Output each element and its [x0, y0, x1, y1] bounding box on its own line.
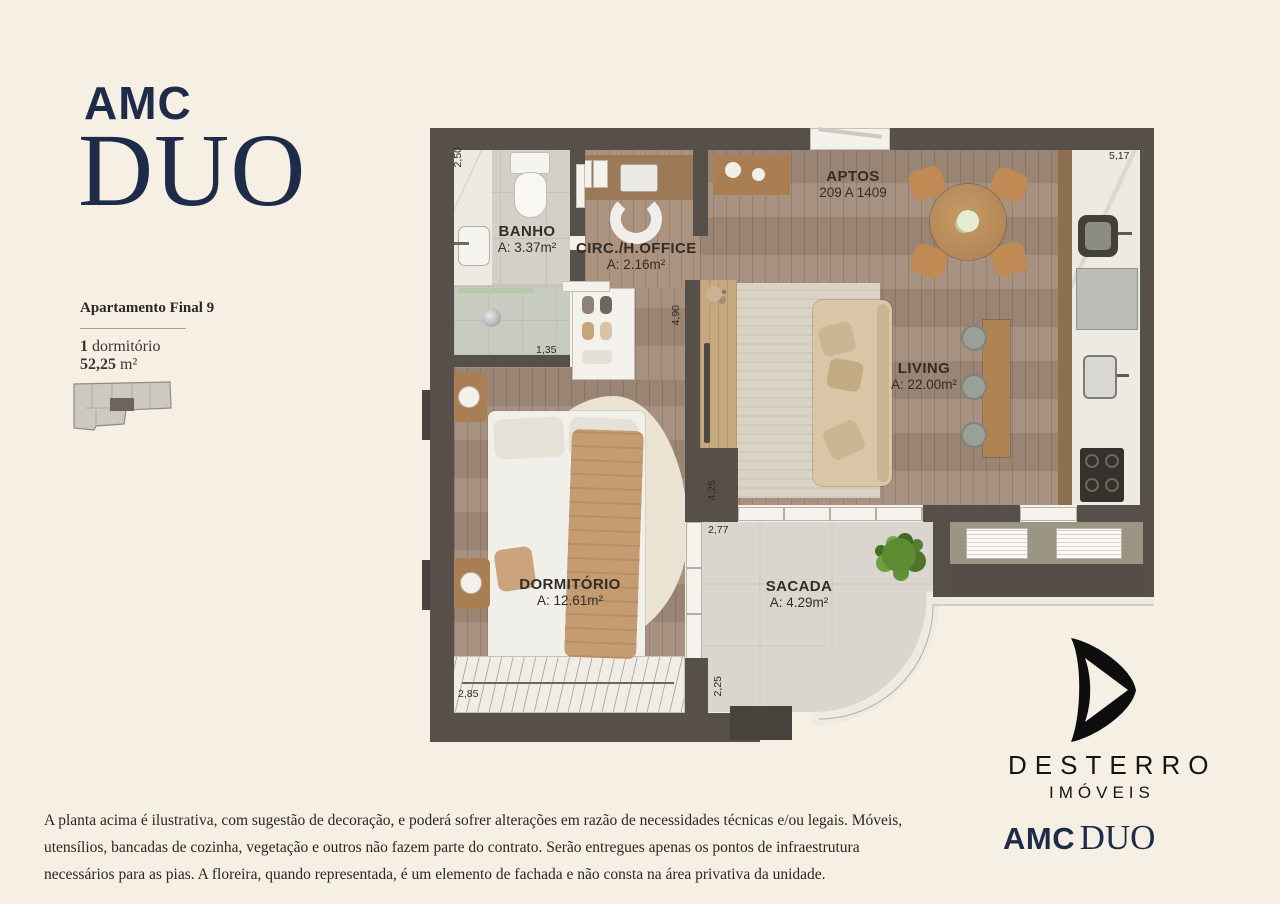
pilaster-left-lower — [422, 560, 430, 610]
aptos-title: APTOS — [793, 168, 913, 185]
dim-hall: 4,90 — [670, 305, 682, 325]
flyer-page: { "brand": { "amc": "AMC", "duo": "DUO" … — [0, 0, 1280, 904]
divider — [80, 328, 186, 329]
burner-2 — [1105, 454, 1119, 468]
bedroom-hall-floor — [635, 288, 685, 380]
curtain-rail — [462, 682, 674, 684]
footer-brand: AMC DUO — [1003, 818, 1155, 858]
wall-bath-bedroom — [448, 355, 570, 367]
label-circ: CIRC./H.OFFICE A: 2.16m² — [576, 240, 696, 272]
unit-area: 52,25 m² — [80, 356, 137, 374]
living-balcony-sliding-door — [738, 507, 923, 521]
balcony-plant — [882, 538, 916, 572]
burner-3 — [1085, 478, 1099, 492]
sofa-cushion-2 — [826, 357, 865, 392]
service-ledge-recess — [950, 564, 1143, 597]
wall-bottom — [430, 713, 760, 742]
shoes-1 — [582, 296, 594, 314]
sofa-backrest — [877, 304, 889, 482]
prep-faucet — [1117, 374, 1129, 377]
kitchen-window — [1020, 507, 1077, 521]
unit-area-unit: m² — [116, 356, 137, 373]
desk-speaker-right — [593, 160, 608, 188]
shoes-5 — [582, 350, 612, 364]
pilaster-left-upper — [422, 390, 430, 440]
keyplan-unit-highlight — [110, 398, 134, 411]
bar-stool-1 — [961, 325, 987, 351]
desk-monitor — [620, 164, 658, 192]
wall-bedroom-living — [685, 280, 700, 448]
circ-name: CIRC./H.OFFICE — [576, 240, 696, 257]
dormitorio-name: DORMITÓRIO — [510, 576, 630, 593]
dim-bedroom-window: 2,85 — [458, 688, 478, 700]
shoes-4 — [600, 322, 612, 340]
wall-right-balcony — [1143, 522, 1154, 597]
shower-glass — [458, 288, 534, 293]
footer-brand-duo: DUO — [1080, 818, 1156, 857]
bar-stool-3 — [961, 422, 987, 448]
living-area: A: 22.00m² — [864, 377, 984, 392]
brand-logo-duo: DUO — [78, 128, 306, 213]
bedroom-balcony-door — [686, 522, 702, 660]
dim-left-wall: 2,50 — [452, 147, 464, 167]
kitchen-cabinet-front — [1058, 146, 1072, 505]
keyplan-thumbnail — [66, 376, 190, 436]
unit-area-value: 52,25 — [80, 356, 116, 373]
dim-living-side: 4,25 — [706, 480, 718, 500]
circ-area: A: 2.16m² — [576, 257, 696, 272]
label-dormitorio: DORMITÓRIO A: 12.61m² — [510, 576, 630, 608]
dim-kitchen: 5,17 — [1109, 150, 1129, 162]
bedroom-number: 1 — [80, 338, 88, 355]
shoes-3 — [582, 322, 594, 340]
tv — [704, 343, 710, 443]
label-banho: BANHO A: 3.37m² — [477, 223, 577, 255]
banho-name: BANHO — [477, 223, 577, 240]
kitchen-sink-basin — [1085, 222, 1111, 250]
realtor-subtitle: IMÓVEIS — [1049, 783, 1155, 803]
footer-brand-amc: AMC — [1003, 821, 1075, 856]
ac-condenser-left — [966, 528, 1028, 559]
wall-hall-living — [693, 150, 708, 236]
sacada-name: SACADA — [739, 578, 859, 595]
living-name: LIVING — [864, 360, 984, 377]
aptos-range: 209 A 1409 — [793, 185, 913, 200]
wall-left — [430, 150, 454, 713]
bathroom-door-leaf — [576, 164, 585, 208]
wall-bottom-corner — [730, 706, 792, 740]
bar-counter — [983, 320, 1010, 457]
label-aptos: APTOS 209 A 1409 — [793, 168, 913, 200]
dim-sacada-side: 2,25 — [712, 676, 724, 696]
floor-plan: BANHO A: 3.37m² CIRC./H.OFFICE A: 2.16m²… — [430, 128, 1154, 742]
office-chair — [610, 194, 662, 244]
wall-top-right — [890, 128, 1154, 150]
table-centerpiece-plant — [957, 210, 979, 232]
bedroom-door-threshold — [562, 281, 610, 292]
dim-sacada-top: 2,77 — [708, 524, 728, 536]
ac-condenser-right — [1056, 528, 1122, 559]
lamp-bottom — [460, 572, 482, 594]
vanity-faucet — [454, 242, 469, 245]
sacada-area: A: 4.29m² — [739, 595, 859, 610]
bedroom-label: dormitório — [88, 338, 160, 355]
bedroom-window-curtain — [450, 656, 685, 713]
wall-south-right — [1077, 505, 1154, 522]
toilet-bowl — [514, 172, 547, 218]
bed-pillow-left — [493, 416, 565, 460]
shower-head — [482, 308, 501, 327]
label-sacada: SACADA A: 4.29m² — [739, 578, 859, 610]
burner-4 — [1105, 478, 1119, 492]
kitchen-faucet — [1118, 232, 1132, 235]
dim-shower: 1,35 — [536, 344, 556, 356]
toilet-tank — [510, 152, 550, 174]
sideboard-dish-2 — [752, 168, 765, 181]
wall-right — [1140, 128, 1154, 522]
wall-top-left — [430, 128, 810, 150]
legal-disclaimer: A planta acima é ilustrativa, com sugest… — [44, 808, 916, 888]
sideboard-dish-1 — [725, 162, 741, 178]
lamp-top — [458, 386, 480, 408]
fridge — [1076, 268, 1138, 330]
banho-area: A: 3.37m² — [477, 240, 577, 255]
bed-throw-blanket — [564, 429, 644, 659]
shoes-2 — [600, 296, 612, 314]
dormitorio-area: A: 12.61m² — [510, 593, 630, 608]
prep-sink — [1083, 355, 1117, 399]
pillar-balcony-left — [685, 658, 708, 720]
wall-balcony-ledge — [933, 520, 950, 597]
label-living: LIVING A: 22.00m² — [864, 360, 984, 392]
bedroom-count: 1 dormitório — [80, 338, 160, 356]
dried-flowers-vase — [706, 286, 722, 302]
realtor-name: DESTERRO — [1008, 750, 1216, 781]
burner-1 — [1085, 454, 1099, 468]
apartment-title: Apartamento Final 9 — [80, 300, 214, 317]
